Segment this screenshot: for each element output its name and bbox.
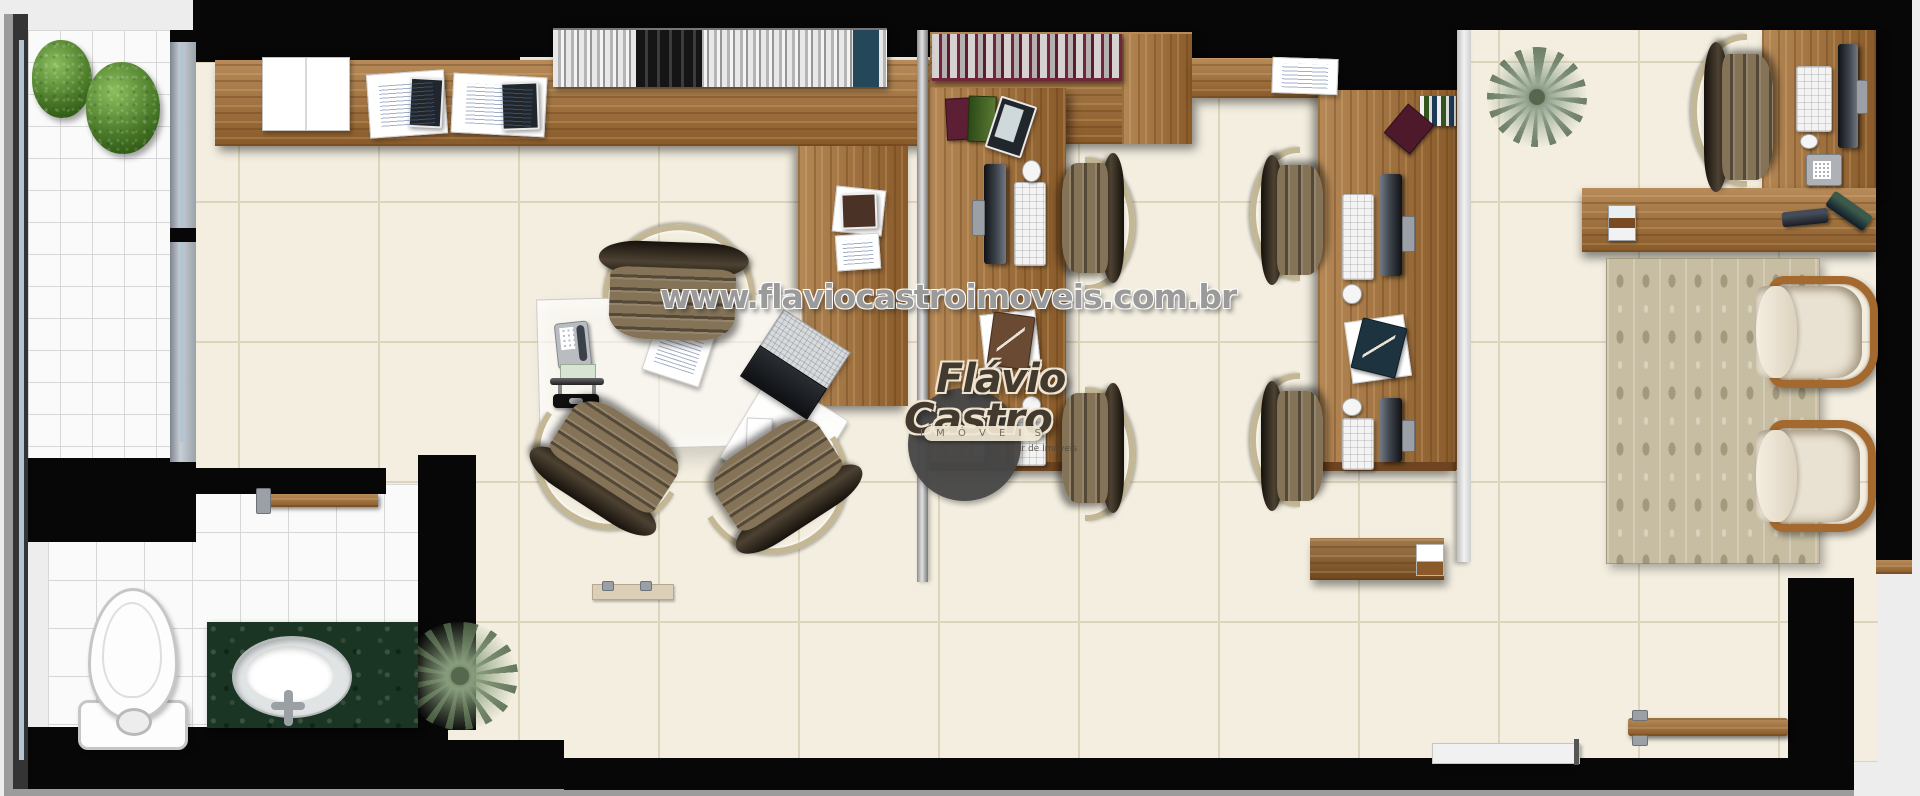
monitor-bracket-ws1a [972, 200, 985, 236]
wall-right [1876, 28, 1912, 562]
toilet-flush-button [116, 708, 152, 736]
wall-bathroom-top [188, 468, 386, 494]
door-hinge-a [1632, 710, 1648, 721]
phone-handset [576, 325, 588, 362]
phone-keypad [559, 327, 575, 350]
wall-top-left [193, 0, 520, 62]
palm-core [1529, 89, 1545, 105]
door-jamb-right [1876, 560, 1912, 574]
shelf-paper [1271, 57, 1338, 95]
track-clip-a [602, 581, 614, 591]
wall-top-right [1460, 0, 1912, 30]
monitor-ws2a [1380, 174, 1402, 276]
logo-tagline: I M Ó V E I S [924, 426, 1042, 441]
monitor-bracket-exec [1856, 80, 1868, 114]
armchair-cushion [1756, 430, 1797, 522]
pocketbook [840, 192, 877, 229]
tablet-screen [994, 104, 1024, 143]
document-stack-2 [450, 73, 547, 138]
palm-core [451, 667, 470, 684]
wall-corner-bottom-right [1788, 578, 1854, 790]
wall-bottom [564, 758, 1788, 790]
threshold-stop [1574, 739, 1579, 765]
bookshelf-red [932, 34, 1122, 81]
wall-top-jog-a [1190, 0, 1318, 58]
floor-plan: www.flaviocastroimoveis.com.br Flávio Ca… [0, 0, 1920, 796]
logo-subtext-1: Corretor de Imóveis [988, 444, 1077, 454]
workstation-desk-2-endcap [1320, 462, 1456, 471]
chair-seat [1277, 391, 1322, 500]
faucet-handle [271, 702, 305, 710]
armchair-1 [1756, 276, 1878, 388]
desk-phone-exec [1806, 154, 1842, 186]
whiteboard-divider [305, 58, 307, 130]
palm-plant-top [1487, 47, 1587, 147]
keyboard-exec [1796, 66, 1832, 132]
bookshelf-white [553, 28, 887, 87]
bathroom-sliding-door [266, 494, 378, 507]
left-window-glass [19, 40, 24, 760]
mouse-ws2a [1342, 284, 1362, 304]
bathroom-door-handle [256, 488, 271, 514]
shrub-1 [32, 40, 92, 118]
cabinet-item [1416, 544, 1444, 576]
mouse-ws2b [1342, 398, 1362, 416]
teal-book [853, 30, 879, 87]
entrance-threshold [1432, 743, 1580, 764]
partition-wall [1457, 30, 1471, 562]
keyboard-ws2a [1342, 194, 1374, 280]
door-hinge-b [1632, 735, 1648, 746]
phone-keypad [1813, 161, 1831, 179]
counter-return [1122, 34, 1192, 144]
chair-seat [1722, 54, 1773, 180]
armchair-cushion [1756, 286, 1797, 378]
monitor-ws1a [984, 164, 1006, 264]
wall-bottom-step [448, 740, 564, 789]
card-holder [1608, 205, 1636, 241]
wall-balcony-bath [28, 458, 196, 542]
monitor-bracket-ws2b [1402, 420, 1415, 452]
office-chair-ws1a [1061, 153, 1135, 283]
wall-top-jog-b [1318, 0, 1460, 90]
tablet-1 [408, 77, 445, 129]
desk-phone [554, 320, 593, 369]
balcony-window-mullion-a [170, 30, 196, 42]
monitor-ws2b [1380, 398, 1402, 462]
chair-seat [1277, 165, 1322, 274]
mouse-exec [1800, 134, 1818, 149]
entrance-door [1628, 718, 1788, 736]
keyboard-ws2b [1342, 418, 1374, 470]
outer-edge-bottom [4, 789, 1854, 796]
track-clip-b [640, 581, 652, 591]
logo-subtext-2: CRECI [988, 455, 1015, 465]
watermark: www.flaviocastroimoveis.com.br [660, 277, 1236, 316]
monitor-exec [1838, 44, 1858, 148]
whiteboard [262, 57, 350, 131]
monitor-bracket-ws2a [1402, 216, 1415, 252]
chair-seat [1063, 163, 1108, 272]
reception-paper [832, 186, 887, 237]
document-stack-1 [366, 69, 448, 138]
palm-plant-bottom [402, 622, 518, 730]
armchair-2 [1756, 420, 1876, 532]
organizer-tray [560, 364, 596, 379]
black-book-group [636, 30, 702, 87]
office-chair-ws2a [1250, 155, 1324, 285]
balcony-window-glass [180, 42, 184, 442]
executive-chair [1691, 42, 1775, 192]
office-chair-ws2b [1250, 381, 1324, 511]
mouse-ws1a [1022, 160, 1041, 182]
outer-wall-left-a [4, 14, 13, 792]
tablet-2 [500, 81, 540, 130]
balcony-window-mullion-b [170, 228, 196, 242]
shrub-2 [86, 62, 160, 154]
keyboard-ws1a [1014, 182, 1046, 266]
wall-top-center [932, 0, 1192, 32]
reception-note [835, 233, 881, 272]
